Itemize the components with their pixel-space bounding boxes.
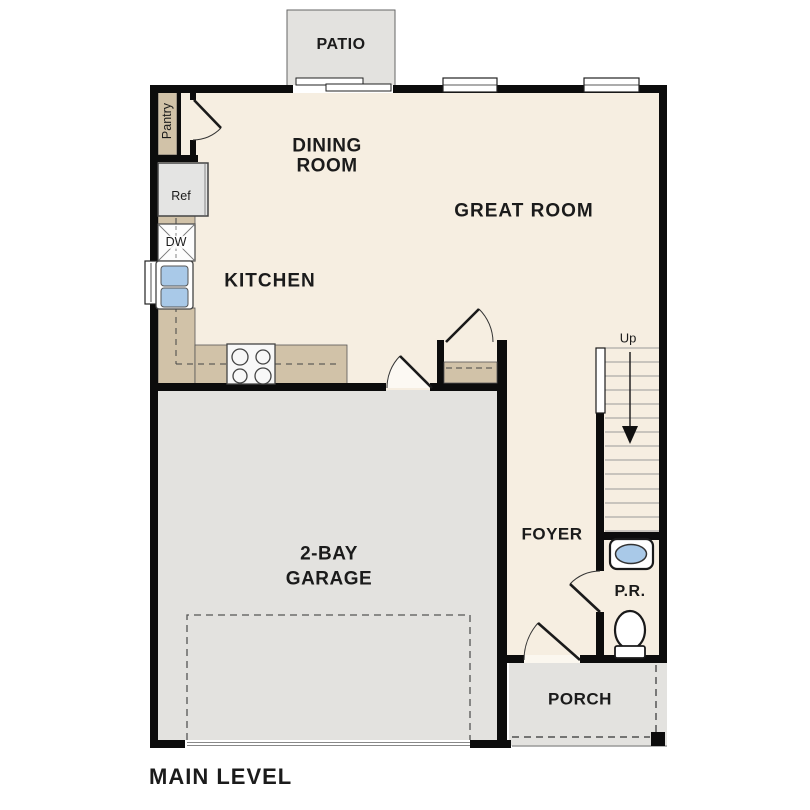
stairs-up-label: Up [620, 332, 637, 345]
stove-icon [227, 344, 275, 384]
window-icon-greatroom-2 [584, 78, 639, 92]
fixture-label-dishwasher: DW [165, 236, 188, 249]
toilet-icon [615, 611, 645, 658]
room-label-garage-line2: GARAGE [286, 570, 372, 589]
room-label-foyer: FOYER [521, 526, 582, 543]
room-label-garage-line1: 2-BAY [300, 545, 358, 564]
floor-plan: PATIO DINING ROOM GREAT ROOM KITCHEN 2-B… [0, 0, 810, 810]
floor-plan-drawing [0, 0, 810, 810]
window-icon-greatroom-1 [443, 78, 497, 92]
room-label-great-room: GREAT ROOM [454, 202, 593, 221]
fixture-label-pantry: Pantry [161, 103, 174, 139]
garage-floor [156, 390, 501, 742]
room-label-porch: PORCH [548, 691, 612, 708]
closet-shelf [444, 362, 497, 383]
room-label-dining-line2: ROOM [296, 157, 357, 176]
fixture-label-refrigerator: Ref [171, 190, 190, 203]
porch-post [651, 732, 665, 746]
vanity-sink-icon [610, 539, 653, 569]
window-icon-kitchen [145, 261, 157, 304]
stair-rail [596, 348, 605, 413]
room-label-powder-room: P.R. [614, 584, 645, 600]
room-label-dining-line1: DINING [292, 137, 362, 156]
kitchen-sink-icon [156, 261, 193, 309]
room-label-kitchen: KITCHEN [224, 272, 315, 291]
room-label-patio: PATIO [316, 37, 365, 53]
floor-title: MAIN LEVEL [149, 764, 292, 790]
